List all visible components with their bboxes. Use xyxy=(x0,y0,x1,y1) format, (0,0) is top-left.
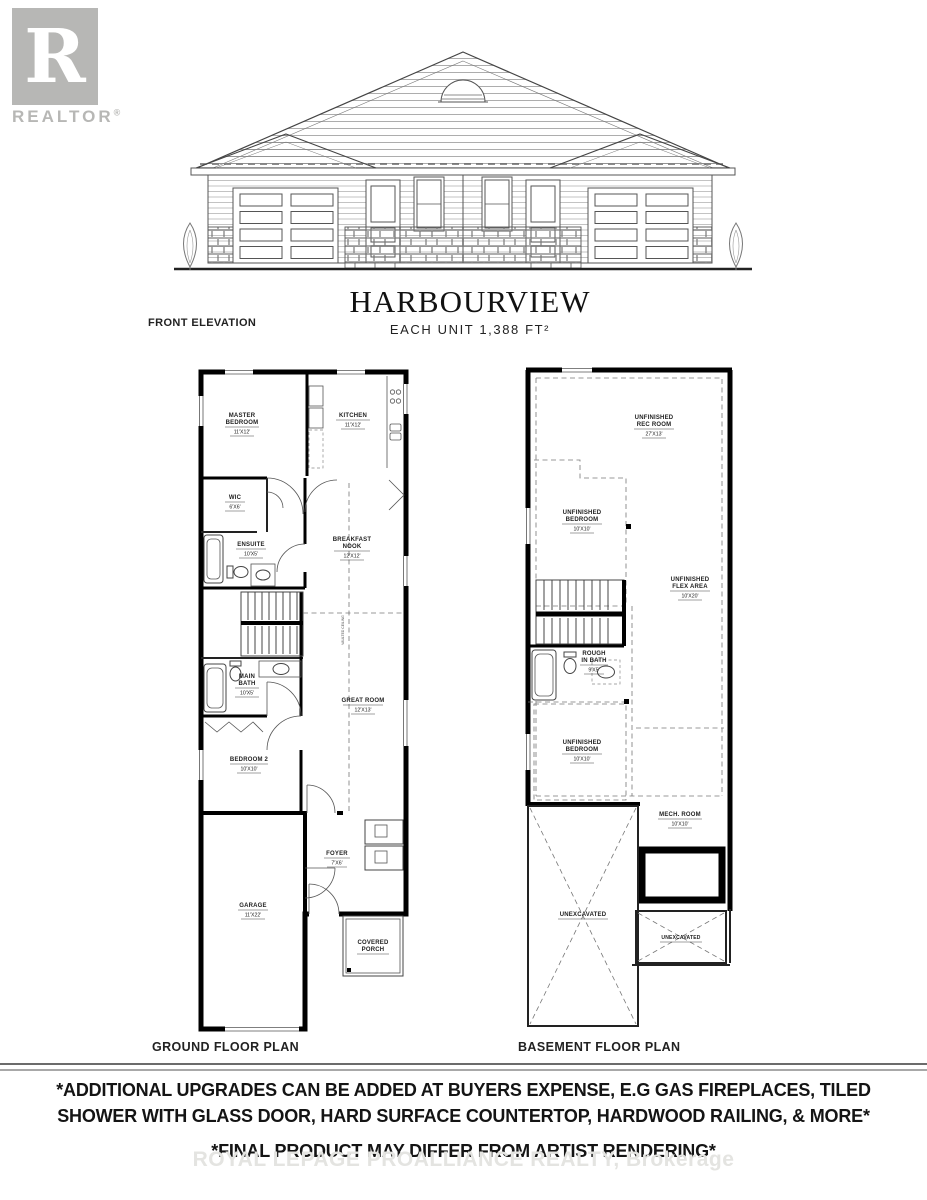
brokerage-watermark: ROYAL LEPAGE PROALLIANCE REALTY, Brokera… xyxy=(0,1148,927,1172)
realtor-wordmark-text: REALTOR xyxy=(12,107,114,126)
right-window xyxy=(482,177,512,231)
foyer-closet xyxy=(365,820,403,870)
left-garage-door xyxy=(233,188,338,263)
svg-text:27'X13': 27'X13' xyxy=(646,432,663,438)
svg-text:MASTER: MASTER xyxy=(229,413,256,419)
basement-floor-plan-drawing: UNEXCAVATED UNEXCAVATED UNFINISHED REC R… xyxy=(524,366,736,1030)
room-label-flex-area: UNFINISHED FLEX AREA 10'X20' xyxy=(670,577,710,600)
basement-stairs xyxy=(528,580,624,646)
svg-text:11'X12': 11'X12' xyxy=(345,423,362,429)
svg-text:COVERED: COVERED xyxy=(357,940,389,946)
bedroom2-closet xyxy=(205,722,263,732)
realtor-logo-box: R xyxy=(12,8,98,105)
front-elevation-label: FRONT ELEVATION xyxy=(148,317,256,329)
svg-text:11'X22': 11'X22' xyxy=(245,913,262,919)
room-label-basement-bedroom-upper: UNFINISHED BEDROOM 10'X10' xyxy=(562,510,602,533)
vaulted-ceiling-note: VAULTED CEILING xyxy=(341,615,345,645)
svg-text:10'X10': 10'X10' xyxy=(672,822,689,828)
svg-text:UNEXCAVATED: UNEXCAVATED xyxy=(661,935,700,941)
svg-text:7'X6': 7'X6' xyxy=(331,861,342,867)
svg-text:9'X5': 9'X5' xyxy=(588,668,599,674)
room-label-basement-bedroom-lower: UNFINISHED BEDROOM 10'X10' xyxy=(562,740,602,763)
right-garage-door xyxy=(588,188,693,263)
svg-text:BATH: BATH xyxy=(238,681,255,687)
porch-foundation xyxy=(642,850,722,900)
svg-text:REC ROOM: REC ROOM xyxy=(637,422,672,428)
svg-text:ENSUITE: ENSUITE xyxy=(237,542,264,548)
room-label-great-room: GREAT ROOM 12'X13' xyxy=(342,698,385,714)
disclaimer-line-2: SHOWER WITH GLASS DOOR, HARD SURFACE COU… xyxy=(0,1103,927,1129)
svg-text:12'X12': 12'X12' xyxy=(344,554,361,560)
svg-text:NOOK: NOOK xyxy=(343,544,362,550)
realtor-logo: R REALTOR® xyxy=(12,8,132,127)
room-label-garage: GARAGE 11'X22' xyxy=(238,903,268,919)
svg-text:UNFINISHED: UNFINISHED xyxy=(563,510,602,516)
svg-text:KITCHEN: KITCHEN xyxy=(339,413,367,419)
svg-text:BEDROOM: BEDROOM xyxy=(566,747,599,753)
svg-text:GARAGE: GARAGE xyxy=(239,903,267,909)
porch-step xyxy=(345,263,581,268)
svg-text:10'X20': 10'X20' xyxy=(682,594,699,600)
room-label-breakfast-nook: BREAKFAST NOOK 12'X12' xyxy=(333,537,372,560)
floorplan-sheet: R REALTOR® xyxy=(0,0,927,1200)
svg-text:FOYER: FOYER xyxy=(326,851,348,857)
page-title: HARBOURVIEW xyxy=(250,284,690,320)
svg-text:BEDROOM: BEDROOM xyxy=(566,517,599,523)
unexcavated-right-area: UNEXCAVATED xyxy=(632,911,730,965)
svg-text:10'X10': 10'X10' xyxy=(574,527,591,533)
room-label-foyer: FOYER 7'X6' xyxy=(324,851,350,867)
svg-text:MAIN: MAIN xyxy=(239,674,255,680)
room-label-main-bath: MAIN BATH 10'X5' xyxy=(235,674,259,697)
registered-symbol: ® xyxy=(114,107,121,117)
ground-interior-walls xyxy=(201,372,343,918)
ground-stairs xyxy=(241,592,303,656)
room-label-kitchen: KITCHEN 11'X12' xyxy=(336,413,370,429)
front-elevation-drawing xyxy=(160,38,766,276)
room-label-bedroom-2: BEDROOM 2 10'X10' xyxy=(230,757,269,773)
footer-divider xyxy=(0,1063,927,1071)
room-label-master-bedroom: MASTER BEDROOM 11'X12' xyxy=(225,413,259,436)
svg-text:BREAKFAST: BREAKFAST xyxy=(333,537,372,543)
ground-floor-plan-drawing: VAULTED CEILING MASTER BEDROOM 11'X12' K… xyxy=(197,368,410,1035)
left-tree xyxy=(184,223,197,270)
svg-text:WIC: WIC xyxy=(229,495,242,501)
realtor-logo-r: R xyxy=(24,20,86,94)
svg-text:PORCH: PORCH xyxy=(362,947,385,953)
svg-text:MECH. ROOM: MECH. ROOM xyxy=(659,812,701,818)
right-tree xyxy=(730,223,743,270)
svg-text:BEDROOM 2: BEDROOM 2 xyxy=(230,757,269,763)
svg-text:6'X6': 6'X6' xyxy=(229,505,240,511)
unexcavated-left-area: UNEXCAVATED xyxy=(528,806,638,1026)
basement-windows xyxy=(524,366,592,770)
svg-text:BEDROOM: BEDROOM xyxy=(226,420,259,426)
room-label-wic: WIC 6'X6' xyxy=(225,495,245,511)
ground-floor-plan-label: GROUND FLOOR PLAN xyxy=(152,1040,299,1054)
svg-text:GREAT ROOM: GREAT ROOM xyxy=(342,698,385,704)
svg-text:12'X13': 12'X13' xyxy=(355,708,372,714)
left-window xyxy=(414,177,444,231)
svg-text:UNFINISHED: UNFINISHED xyxy=(635,415,674,421)
svg-text:10'X10': 10'X10' xyxy=(241,767,258,773)
svg-text:10'X10': 10'X10' xyxy=(574,757,591,763)
svg-text:11'X12': 11'X12' xyxy=(234,430,251,436)
disclaimer-line-1: *ADDITIONAL UPGRADES CAN BE ADDED AT BUY… xyxy=(0,1077,927,1103)
svg-text:10'X5': 10'X5' xyxy=(244,552,258,558)
svg-text:UNEXCAVATED: UNEXCAVATED xyxy=(560,912,607,918)
svg-text:UNFINISHED: UNFINISHED xyxy=(563,740,602,746)
svg-text:UNFINISHED: UNFINISHED xyxy=(671,577,710,583)
basement-floor-plan-label: BASEMENT FLOOR PLAN xyxy=(518,1040,680,1054)
svg-text:IN BATH: IN BATH xyxy=(581,658,606,664)
room-label-covered-porch: COVERED PORCH xyxy=(357,940,389,954)
room-label-rec-room: UNFINISHED REC ROOM 27'X13' xyxy=(634,415,674,438)
page-subtitle: EACH UNIT 1,388 FT² xyxy=(250,322,690,337)
svg-text:10'X5': 10'X5' xyxy=(240,691,254,697)
svg-text:ROUGH: ROUGH xyxy=(582,651,605,657)
room-label-ensuite: ENSUITE 10'X5' xyxy=(236,542,266,558)
svg-text:FLEX AREA: FLEX AREA xyxy=(672,584,708,590)
realtor-wordmark: REALTOR® xyxy=(12,107,132,127)
room-label-mech-room: MECH. ROOM 10'X10' xyxy=(658,812,702,828)
greatroom-ceiling-dashes: VAULTED CEILING xyxy=(303,483,404,811)
covered-porch-outline xyxy=(343,916,403,976)
ground-door-arcs xyxy=(267,478,404,914)
